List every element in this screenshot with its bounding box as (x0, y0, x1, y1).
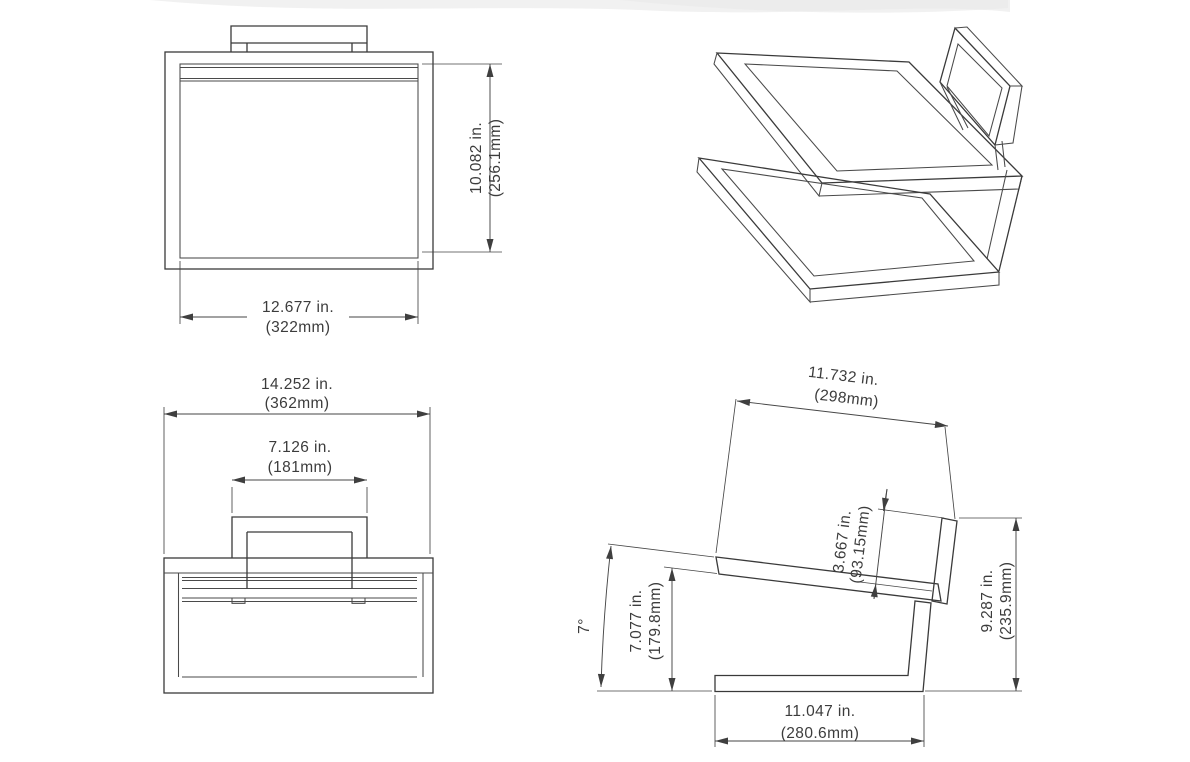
plan-backrest-width-mm: (181mm) (268, 459, 333, 476)
side-view: 11.732 in. (298mm) 3.667 in. (93.15mm) 7… (576, 364, 1022, 747)
side-seat-slab (716, 557, 941, 601)
isometric-view (697, 27, 1022, 302)
side-base-length-dimension: 11.047 in. (280.6mm) (715, 695, 924, 747)
plan-overall-width-mm: (362mm) (265, 395, 330, 412)
front-width-mm: (322mm) (266, 319, 331, 336)
front-seat-edge-lines (180, 68, 418, 82)
front-backrest-tab (231, 26, 367, 52)
technical-drawing-sheet: 10.082 in. (256.1mm) 12.677 in. (322mm) (0, 0, 1190, 762)
backrest-outer (940, 28, 1010, 145)
plan-outer-frame (164, 558, 433, 693)
angle-leg (601, 546, 611, 687)
iso-base-frame (697, 158, 999, 302)
base-outer (699, 158, 999, 289)
front-height-inches: 10.082 in. (468, 122, 485, 194)
side-tilt-angle-label: 7° (576, 618, 593, 634)
arrow-bottom (874, 584, 876, 599)
side-overall-height-mm: (235.9mm) (998, 562, 1015, 641)
side-front-height-inches: 7.077 in. (628, 589, 645, 652)
iso-backrest-frame (940, 27, 1022, 170)
front-view: 10.082 in. (256.1mm) 12.677 in. (322mm) (165, 26, 504, 336)
extension-line (608, 544, 714, 557)
plan-overall-width-inches: 14.252 in. (261, 376, 333, 393)
side-seat-length-mm: (298mm) (813, 386, 879, 411)
plan-backrest-width-dimension: 7.126 in. (181mm) (232, 439, 367, 513)
backrest-thickness (955, 27, 1022, 145)
rear-post-inner (987, 170, 1007, 259)
base-inner (722, 169, 974, 276)
side-base-length-inches: 11.047 in. (785, 703, 856, 720)
plan-notches (232, 598, 365, 603)
side-seat-length-inches: 11.732 in. (807, 364, 879, 389)
side-tilt-angle-dimension: 7° (576, 544, 714, 687)
side-front-height-mm: (179.8mm) (647, 582, 664, 661)
extension-lines (860, 509, 944, 591)
top-view-outline (164, 517, 433, 693)
side-overall-height-dimension: 9.287 in. (235.9mm) (925, 518, 1022, 691)
front-view-outline (165, 26, 433, 269)
plan-backrest-width-inches: 7.126 in. (268, 439, 331, 456)
top-view: 14.252 in. (362mm) 7.126 in. (181mm) (164, 376, 433, 693)
base-thickness (697, 158, 999, 302)
front-height-dimension: 10.082 in. (256.1mm) (422, 64, 504, 252)
side-front-height-dimension: 7.077 in. (179.8mm) (597, 567, 717, 691)
dimension-line (874, 489, 887, 599)
front-width-inches: 12.677 in. (262, 299, 334, 316)
side-base-and-support (715, 601, 931, 692)
seat-inner (745, 64, 992, 171)
seat-outer (717, 53, 1022, 183)
front-outer-frame (165, 52, 433, 269)
plan-frame-lines (164, 573, 433, 677)
front-height-mm: (256.1mm) (487, 119, 504, 198)
side-backrest-post (932, 518, 957, 604)
extension-lines (232, 487, 367, 513)
front-inner-frame (180, 64, 418, 258)
front-width-dimension: 12.677 in. (322mm) (180, 261, 418, 336)
side-overall-height-inches: 9.287 in. (979, 569, 996, 632)
side-base-length-mm: (280.6mm) (781, 725, 860, 742)
iso-rear-posts (987, 170, 1022, 271)
